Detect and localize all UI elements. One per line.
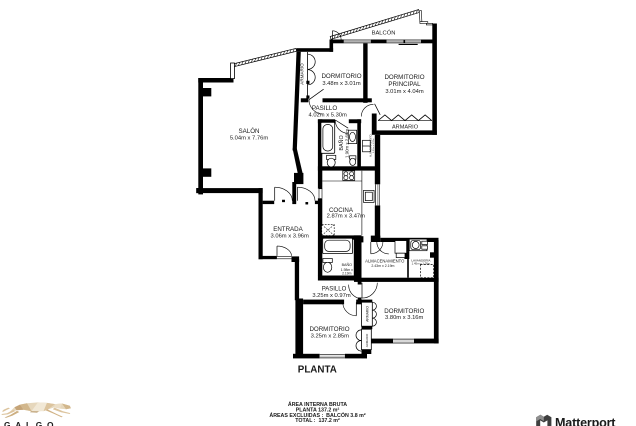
svg-text:ARMARIO: ARMARIO [365, 333, 369, 347]
svg-text:2.43m x 2.19m: 2.43m x 2.19m [371, 264, 394, 268]
svg-text:GALGO: GALGO [4, 420, 58, 426]
svg-text:PASILLO: PASILLO [322, 286, 347, 292]
svg-text:BAÑO: BAÑO [342, 262, 353, 267]
svg-text:3.25m x 0.97m: 3.25m x 0.97m [312, 293, 351, 299]
svg-text:3.06m x 3.96m: 3.06m x 3.96m [271, 234, 310, 240]
svg-text:2.19m: 2.19m [342, 271, 352, 275]
svg-text:1.45m x 1.05m: 1.45m x 1.05m [412, 262, 431, 266]
svg-text:ENTRADA: ENTRADA [273, 226, 303, 233]
svg-text:PASILLO: PASILLO [312, 105, 338, 112]
svg-text:DORMITORIO: DORMITORIO [384, 74, 424, 81]
svg-text:3.48m x 3.01m: 3.48m x 3.01m [322, 81, 361, 87]
svg-text:SALÓN: SALÓN [239, 128, 260, 135]
svg-text:4.02m x 5.30m: 4.02m x 5.30m [309, 113, 348, 119]
svg-text:Matterport: Matterport [555, 416, 616, 426]
svg-text:PLANTA: PLANTA [298, 364, 337, 375]
svg-text:0.57m x 1.37m: 0.57m x 1.37m [373, 138, 375, 153]
svg-text:BALCÓN: BALCÓN [372, 30, 396, 37]
svg-text:DORMITORIO: DORMITORIO [384, 308, 424, 315]
svg-text:3.25m x 2.85m: 3.25m x 2.85m [311, 333, 350, 339]
svg-text:2.87m x 3.47m: 2.87m x 3.47m [327, 214, 366, 220]
svg-text:DORMITORIO: DORMITORIO [309, 326, 349, 333]
svg-text:TOTAL : 137.2 m²: TOTAL : 137.2 m² [295, 418, 340, 424]
svg-text:ALMACENAMIENTO: ALMACENAMIENTO [365, 258, 405, 263]
svg-text:PRINCIPAL: PRINCIPAL [388, 81, 421, 88]
svg-text:ARMARIO: ARMARIO [366, 306, 370, 322]
svg-text:DORMITORIO: DORMITORIO [321, 73, 361, 80]
svg-text:5.04m x 7.76m: 5.04m x 7.76m [230, 136, 269, 142]
svg-text:1.90m x 2.66m: 1.90m x 2.66m [345, 129, 350, 158]
svg-text:ARMARIO: ARMARIO [392, 125, 419, 131]
svg-text:3.80m x 3.16m: 3.80m x 3.16m [385, 315, 424, 321]
svg-text:ARMARIO: ARMARIO [300, 63, 305, 85]
svg-text:3.01m x 4.04m: 3.01m x 4.04m [385, 89, 424, 95]
